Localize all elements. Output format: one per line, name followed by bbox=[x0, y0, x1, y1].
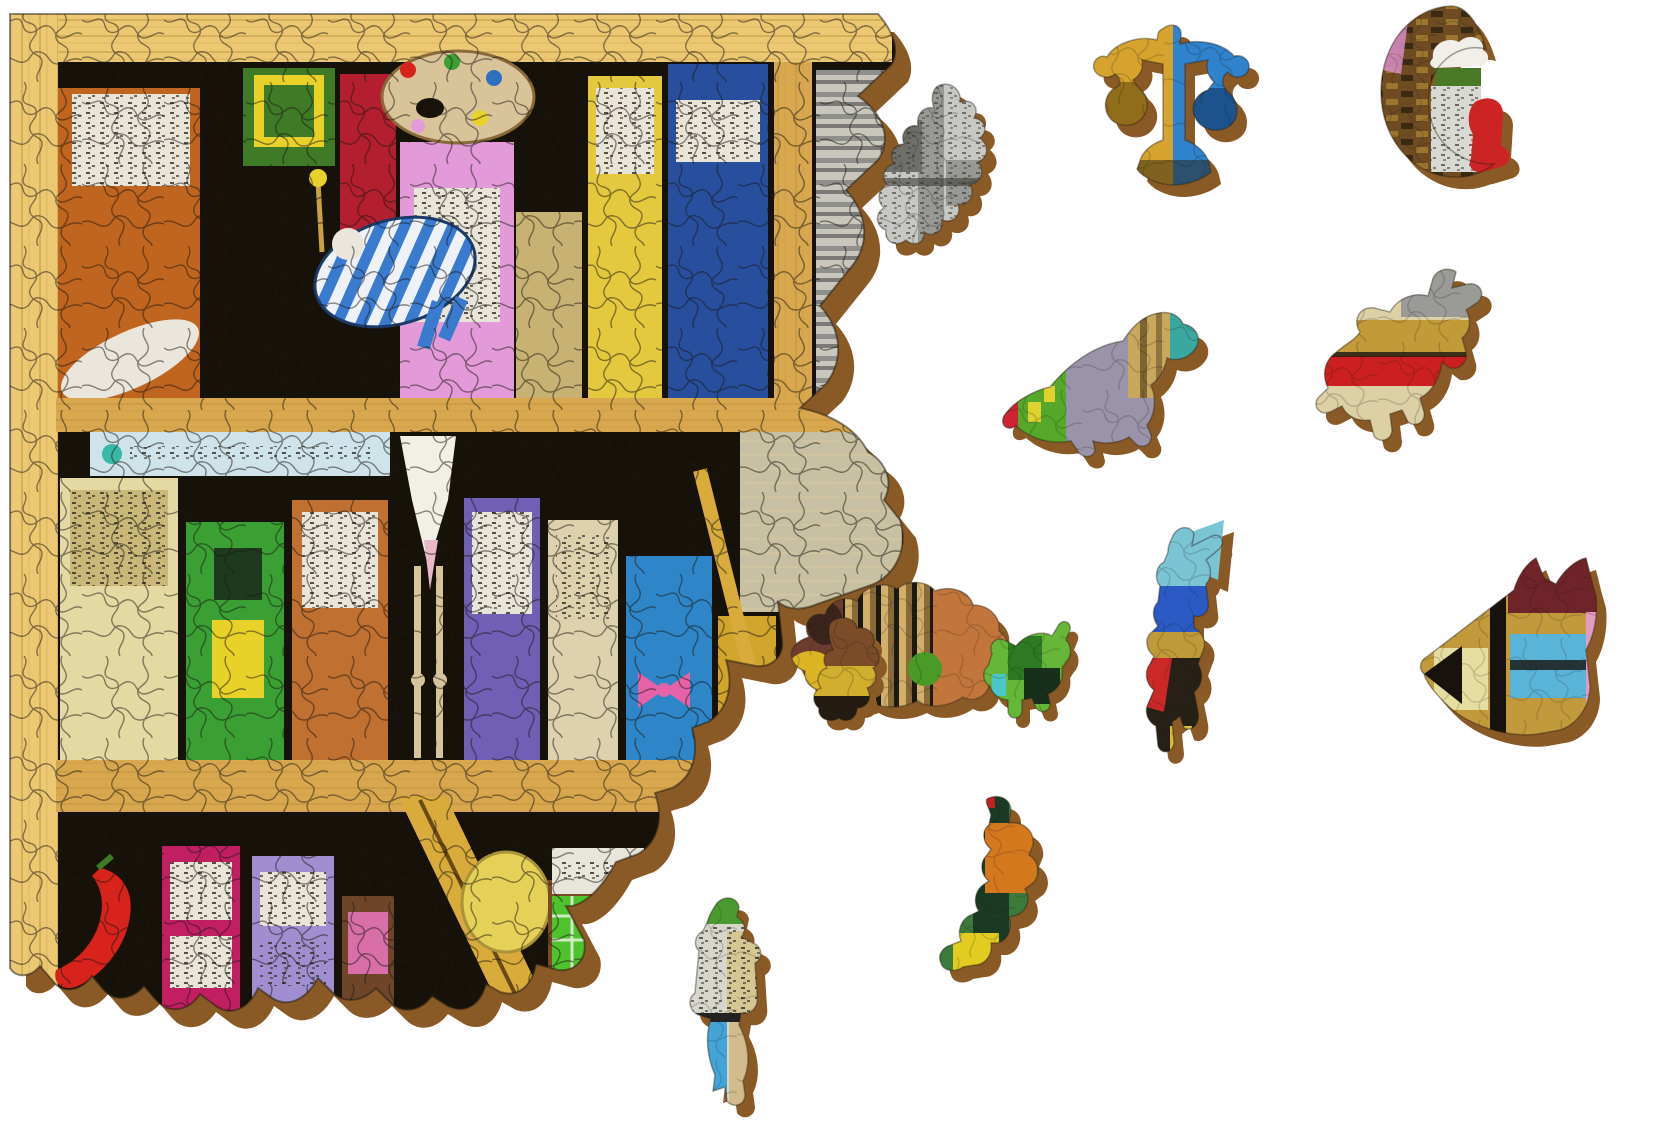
whimsy-piece-scales-of-justice[interactable] bbox=[1077, 17, 1263, 197]
puzzle-scene bbox=[0, 0, 1657, 1132]
piece-art bbox=[650, 890, 790, 1115]
shopfront-red-door bbox=[600, 904, 640, 1012]
assembled-puzzle-region[interactable] bbox=[0, 0, 919, 1030]
whimsy-piece-flag-bearer[interactable] bbox=[1123, 511, 1234, 764]
door-knob bbox=[628, 958, 636, 966]
whimsy-piece-horse-rider[interactable] bbox=[1291, 255, 1496, 470]
puzzle-photo bbox=[0, 0, 1657, 1132]
whimsy-piece-sea-dragon[interactable] bbox=[928, 788, 1053, 983]
puzzle-cut-lines bbox=[0, 0, 910, 1030]
whimsy-piece-crescent-moon[interactable] bbox=[1365, 0, 1520, 189]
whimsy-piece-fox-head[interactable] bbox=[1413, 551, 1608, 747]
whimsy-piece-dinosaur[interactable] bbox=[995, 303, 1210, 468]
whimsy-piece-walking-person[interactable] bbox=[650, 890, 790, 1117]
